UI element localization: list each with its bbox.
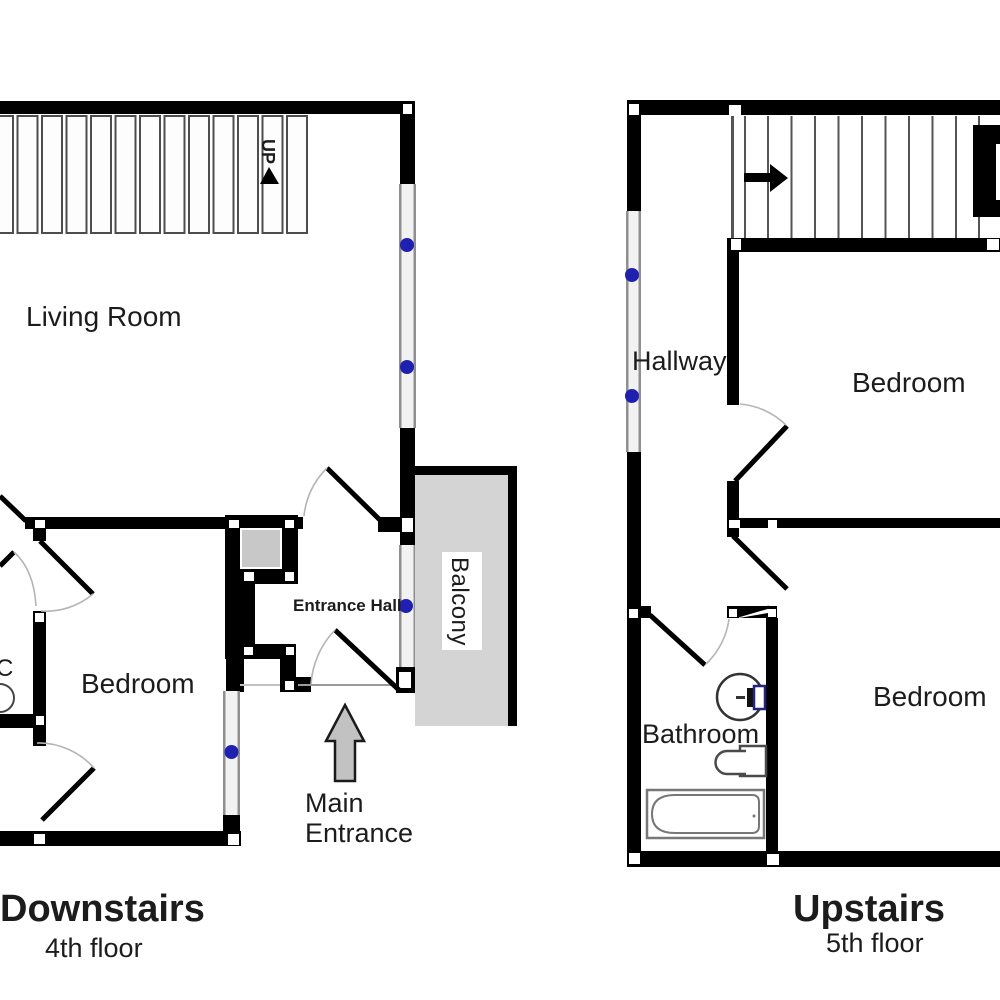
svg-text:Bedroom: Bedroom	[81, 668, 195, 699]
svg-text:Bedroom: Bedroom	[852, 367, 966, 398]
svg-text:4th floor: 4th floor	[45, 933, 143, 963]
svg-text:UP: UP	[258, 139, 278, 164]
svg-text:Main: Main	[305, 788, 364, 818]
svg-text:C: C	[0, 655, 13, 682]
svg-text:Entrance Hall: Entrance Hall	[293, 596, 402, 615]
svg-text:Entrance: Entrance	[305, 818, 413, 848]
svg-text:5th floor: 5th floor	[826, 928, 924, 958]
svg-text:Upstairs: Upstairs	[793, 888, 945, 930]
svg-text:Downstairs: Downstairs	[0, 888, 205, 930]
svg-text:Hallway: Hallway	[632, 346, 727, 376]
svg-text:Bathroom: Bathroom	[642, 719, 759, 749]
svg-text:Balcony: Balcony	[446, 557, 473, 646]
svg-text:Bedroom: Bedroom	[873, 681, 987, 712]
svg-text:Living Room: Living Room	[26, 301, 182, 332]
